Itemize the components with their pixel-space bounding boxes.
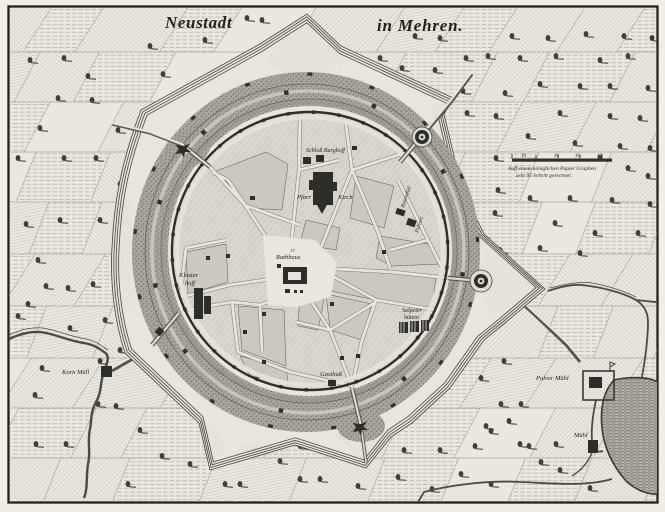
svg-text:Gasthuß: Gasthuß [320,371,343,378]
svg-text:Schloß Burghoff: Schloß Burghoff [306,147,346,154]
svg-text:hütten: hütten [404,315,419,321]
svg-text:17.: 17. [290,248,296,253]
svg-text:20: 20 [554,154,560,159]
svg-text:Neustadt: Neustadt [164,13,233,32]
svg-text:30: 30 [575,154,581,159]
svg-text:40: 40 [597,154,603,159]
svg-text:Rathhaus: Rathhaus [275,254,301,261]
svg-text:Kloster: Kloster [178,272,199,279]
svg-text:in Mehren.: in Mehren. [377,16,463,35]
svg-text:Auff einem königlichen Papier: Auff einem königlichen Papier Graphen [507,165,596,172]
svg-text:Pulver Mühl: Pulver Mühl [535,375,569,382]
svg-text:hoff: hoff [185,280,196,287]
svg-text:Kirch: Kirch [337,194,353,201]
svg-text:sein 95 Schritt gerechnet.: sein 95 Schritt gerechnet. [516,173,572,179]
svg-text:Salpeter: Salpeter [402,308,423,314]
svg-text:Mühl: Mühl [573,432,588,439]
svg-text:Pfarr: Pfarr [296,194,312,201]
svg-text:10: 10 [521,154,527,159]
svg-text:Korn Müll: Korn Müll [61,369,89,376]
